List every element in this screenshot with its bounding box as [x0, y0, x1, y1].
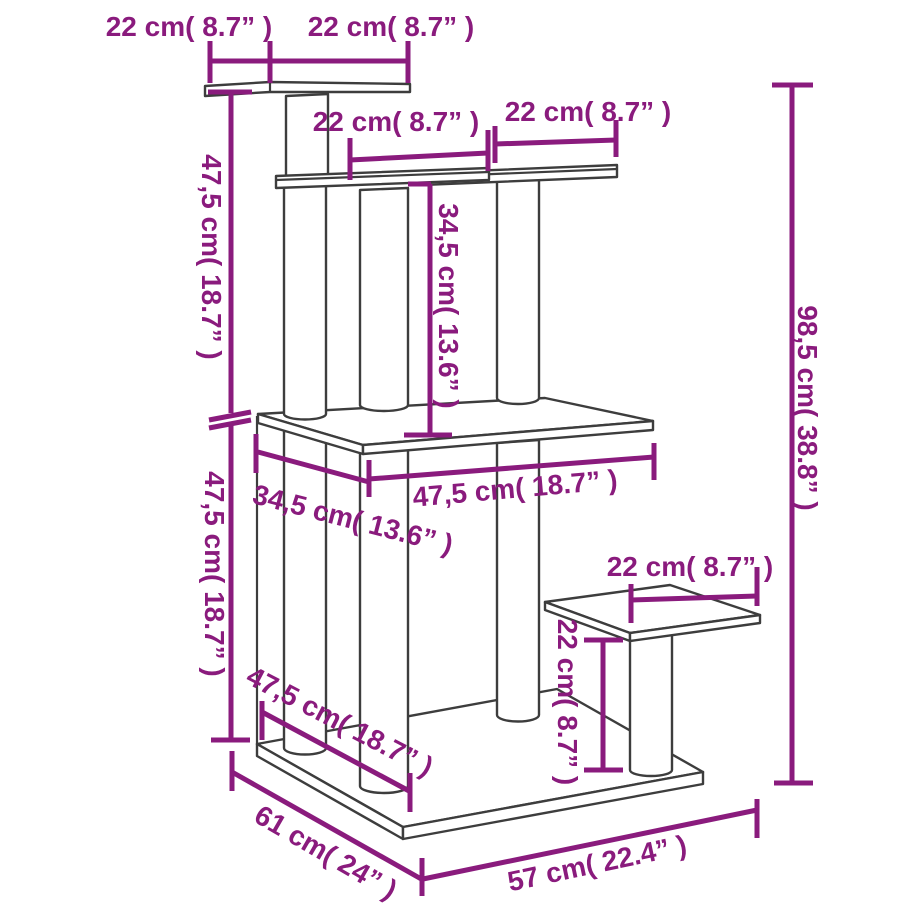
label-base-width: 57 cm( 22.4” ): [505, 829, 690, 897]
step-post: [630, 628, 672, 776]
label-step-height: 22 cm( 8.7” ): [552, 619, 583, 786]
label-total-height: 98,5 cm( 38.8” ): [792, 305, 823, 510]
upper-post-left: [284, 185, 326, 420]
label-post-height: 34,5 cm( 13.6” ): [433, 203, 464, 408]
dimension-diagram: 22 cm( 8.7” ) 22 cm( 8.7” ) 22 cm( 8.7” …: [0, 0, 920, 920]
upper-post-right: [497, 176, 539, 404]
label-top-platform-width: 22 cm( 8.7” ): [308, 11, 475, 42]
dim-top-platform: [210, 41, 408, 83]
upper-post-center: [360, 188, 408, 411]
label-height-lower: 47,5 cm( 18.7” ): [199, 471, 230, 676]
label-level2-left-width: 22 cm( 8.7” ): [313, 106, 480, 137]
label-step-width: 22 cm( 8.7” ): [607, 551, 774, 582]
label-height-upper: 47,5 cm( 18.7” ): [196, 154, 227, 359]
label-level2-right-width: 22 cm( 8.7” ): [505, 96, 672, 127]
label-top-platform-depth: 22 cm( 8.7” ): [106, 11, 273, 42]
cat-tree-dimension-drawing: 22 cm( 8.7” ) 22 cm( 8.7” ) 22 cm( 8.7” …: [0, 0, 920, 920]
